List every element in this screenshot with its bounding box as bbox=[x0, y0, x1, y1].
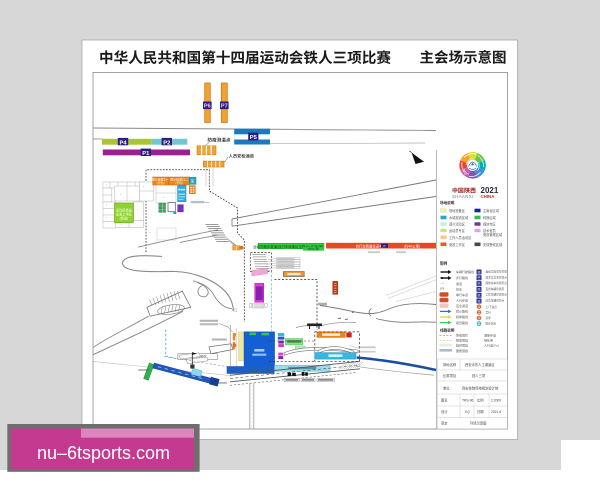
svg-text:(安检): (安检) bbox=[157, 180, 165, 185]
svg-text:铁人三项: 铁人三项 bbox=[472, 373, 486, 378]
svg-text:nu–6tsports.com: nu–6tsports.com bbox=[37, 443, 170, 463]
svg-text:西安沣东人工湖景区: 西安沣东人工湖景区 bbox=[465, 362, 495, 367]
svg-text:P1: P1 bbox=[142, 151, 150, 157]
svg-text:人行道(7m): 人行道(7m) bbox=[484, 343, 499, 348]
svg-text:安保警戒区域: 安保警戒区域 bbox=[483, 242, 503, 247]
svg-text:巴: 巴 bbox=[477, 299, 480, 303]
svg-text:禁停: 禁停 bbox=[486, 316, 492, 320]
svg-text:医: 医 bbox=[191, 179, 194, 183]
svg-text:媒体专区: 媒体专区 bbox=[483, 222, 497, 227]
svg-text:媒体路线: 媒体路线 bbox=[456, 314, 468, 319]
svg-text:单行车道: 单行车道 bbox=[456, 292, 468, 297]
svg-text:场地名称: 场地名称 bbox=[443, 362, 457, 367]
svg-text:应急车辆停靠点: 应急车辆停靠点 bbox=[486, 299, 505, 303]
svg-text:技术官员车停靠点: 技术官员车停靠点 bbox=[486, 275, 508, 279]
svg-text:SHAANXI: SHAANXI bbox=[452, 194, 473, 199]
svg-text:审定: 审定 bbox=[441, 421, 448, 426]
svg-text:隔离围挡: 隔离围挡 bbox=[456, 338, 468, 343]
svg-text:车辆行驶路线: 车辆行驶路线 bbox=[456, 269, 474, 274]
svg-text:观众路线: 观众路线 bbox=[456, 309, 468, 314]
svg-text:场地说明: 场地说明 bbox=[440, 200, 455, 205]
svg-text:线路说明: 线路说明 bbox=[440, 328, 455, 333]
svg-text:(约5公里): (约5公里) bbox=[308, 247, 320, 251]
svg-text:(安检): (安检) bbox=[175, 180, 183, 185]
svg-text:水域赛道区域: 水域赛道区域 bbox=[449, 215, 469, 220]
svg-text:场地准备区: 场地准备区 bbox=[449, 208, 466, 213]
svg-text:巴: 巴 bbox=[477, 294, 480, 298]
svg-text:工作人员活动区: 工作人员活动区 bbox=[449, 235, 472, 240]
svg-text:巴: 巴 bbox=[477, 282, 480, 286]
svg-text:巴: 巴 bbox=[477, 276, 480, 280]
svg-text:步行路线: 步行路线 bbox=[456, 275, 468, 280]
svg-text:工作车辆停靠区点: 工作车辆停靠区点 bbox=[486, 293, 508, 297]
svg-text:湖岸步道: 湖岸步道 bbox=[484, 333, 496, 338]
svg-text:上/下客点: 上/下客点 bbox=[486, 305, 498, 309]
svg-text:P4: P4 bbox=[119, 140, 127, 146]
svg-text:转换区域: 转换区域 bbox=[483, 215, 497, 220]
svg-text:P: P bbox=[383, 244, 385, 248]
svg-text:(约40公里): (约40公里) bbox=[404, 243, 420, 248]
svg-text:应急通道: 应急通道 bbox=[456, 303, 468, 308]
svg-text:官员路线: 官员路线 bbox=[456, 320, 468, 325]
svg-text:环境示意图: 环境示意图 bbox=[470, 421, 487, 426]
svg-text:贵宾车辆停靠区: 贵宾车辆停靠区 bbox=[486, 287, 505, 291]
svg-text:P2: P2 bbox=[163, 140, 170, 146]
svg-text:观众活动区: 观众活动区 bbox=[449, 222, 466, 227]
svg-text:[P]: [P] bbox=[441, 287, 445, 291]
svg-text:医疗站点: 医疗站点 bbox=[486, 322, 497, 326]
svg-text:比例: 比例 bbox=[477, 398, 484, 403]
svg-text:通道: 通道 bbox=[456, 281, 462, 286]
svg-text:媒体班车停靠区点: 媒体班车停靠区点 bbox=[486, 281, 508, 285]
svg-text:XQ: XQ bbox=[465, 410, 470, 414]
svg-text:P5: P5 bbox=[250, 135, 258, 141]
svg-text:设计: 设计 bbox=[441, 409, 448, 414]
svg-text:P7: P7 bbox=[221, 104, 228, 110]
svg-text:巴: 巴 bbox=[477, 288, 480, 292]
svg-text:警戒围栏: 警戒围栏 bbox=[456, 333, 468, 338]
svg-text:巴: 巴 bbox=[477, 270, 480, 274]
svg-text:比赛项目: 比赛项目 bbox=[443, 373, 456, 378]
svg-text:入口: 入口 bbox=[232, 308, 238, 312]
svg-text:硬质围挡: 硬质围挡 bbox=[456, 348, 468, 353]
svg-text:自行车赛道往返4圈: 自行车赛道往返4圈 bbox=[355, 243, 385, 248]
svg-text:禁行: 禁行 bbox=[486, 311, 492, 315]
svg-text:临时围挡: 临时围挡 bbox=[456, 343, 468, 348]
svg-text:运动员专区: 运动员专区 bbox=[449, 228, 466, 233]
svg-text:-->: --> bbox=[441, 281, 445, 285]
svg-text:医: 医 bbox=[478, 322, 481, 326]
svg-text:停车: 停车 bbox=[456, 286, 462, 291]
svg-text:CHINA: CHINA bbox=[481, 194, 496, 199]
svg-text:P6: P6 bbox=[204, 104, 211, 110]
svg-text:主席台区域: 主席台区域 bbox=[483, 208, 500, 213]
svg-text:禁: 禁 bbox=[478, 316, 481, 320]
svg-text:1:2000: 1:2000 bbox=[491, 399, 501, 403]
svg-text:图名: 图名 bbox=[441, 398, 448, 403]
svg-text:2021.6: 2021.6 bbox=[491, 410, 501, 414]
svg-text:日期: 日期 bbox=[477, 409, 484, 414]
svg-text:竞赛管理区域: 竞赛管理区域 bbox=[483, 232, 503, 237]
svg-text:禁: 禁 bbox=[478, 305, 481, 309]
svg-text:TRS-06: TRS-06 bbox=[462, 399, 474, 403]
svg-text:图例: 图例 bbox=[440, 261, 448, 266]
svg-text:人行步道: 人行步道 bbox=[456, 297, 468, 302]
svg-text:竞赛工作区: 竞赛工作区 bbox=[449, 242, 466, 247]
svg-text:西安体院场地规划设计院: 西安体院场地规划设计院 bbox=[462, 386, 499, 391]
svg-text:绿化带: 绿化带 bbox=[484, 338, 493, 343]
svg-text:单位: 单位 bbox=[443, 386, 450, 391]
svg-text:禁: 禁 bbox=[478, 311, 481, 315]
svg-text:运动员接驳车停靠: 运动员接驳车停靠 bbox=[486, 270, 508, 274]
svg-text:(检录): (检录) bbox=[120, 216, 129, 221]
